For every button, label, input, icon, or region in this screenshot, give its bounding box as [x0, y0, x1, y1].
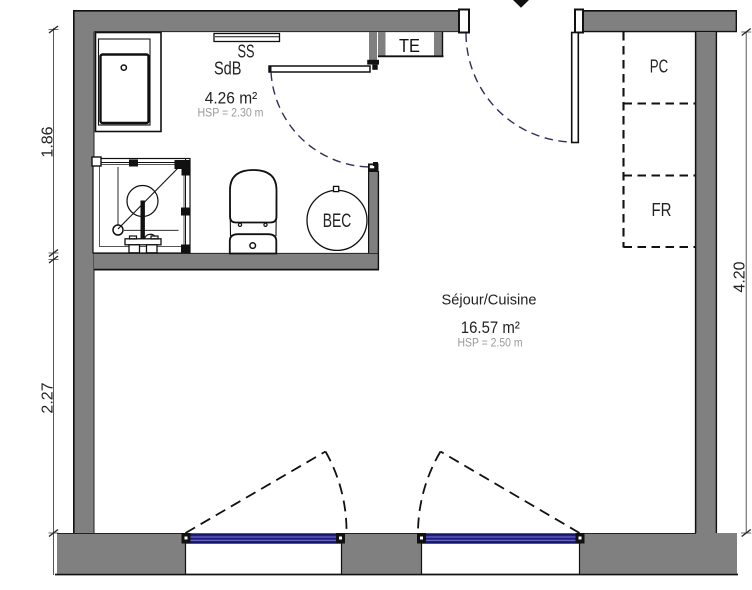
- svg-text:4.26 m²: 4.26 m²: [205, 89, 258, 108]
- svg-text:PC: PC: [650, 56, 669, 76]
- svg-text:HSP = 2.30 m: HSP = 2.30 m: [198, 108, 264, 120]
- svg-text:16.57 m²: 16.57 m²: [461, 318, 520, 337]
- svg-text:HSP = 2.50 m: HSP = 2.50 m: [458, 338, 523, 350]
- svg-text:2.27: 2.27: [40, 382, 57, 413]
- svg-text:1.86: 1.86: [40, 126, 57, 157]
- svg-text:SdB: SdB: [214, 58, 242, 78]
- svg-text:FR: FR: [652, 200, 672, 220]
- svg-text:TE: TE: [399, 36, 420, 56]
- svg-text:4.20: 4.20: [732, 261, 749, 292]
- svg-text:BEC: BEC: [323, 211, 352, 232]
- svg-text:Séjour/Cuisine: Séjour/Cuisine: [442, 293, 537, 309]
